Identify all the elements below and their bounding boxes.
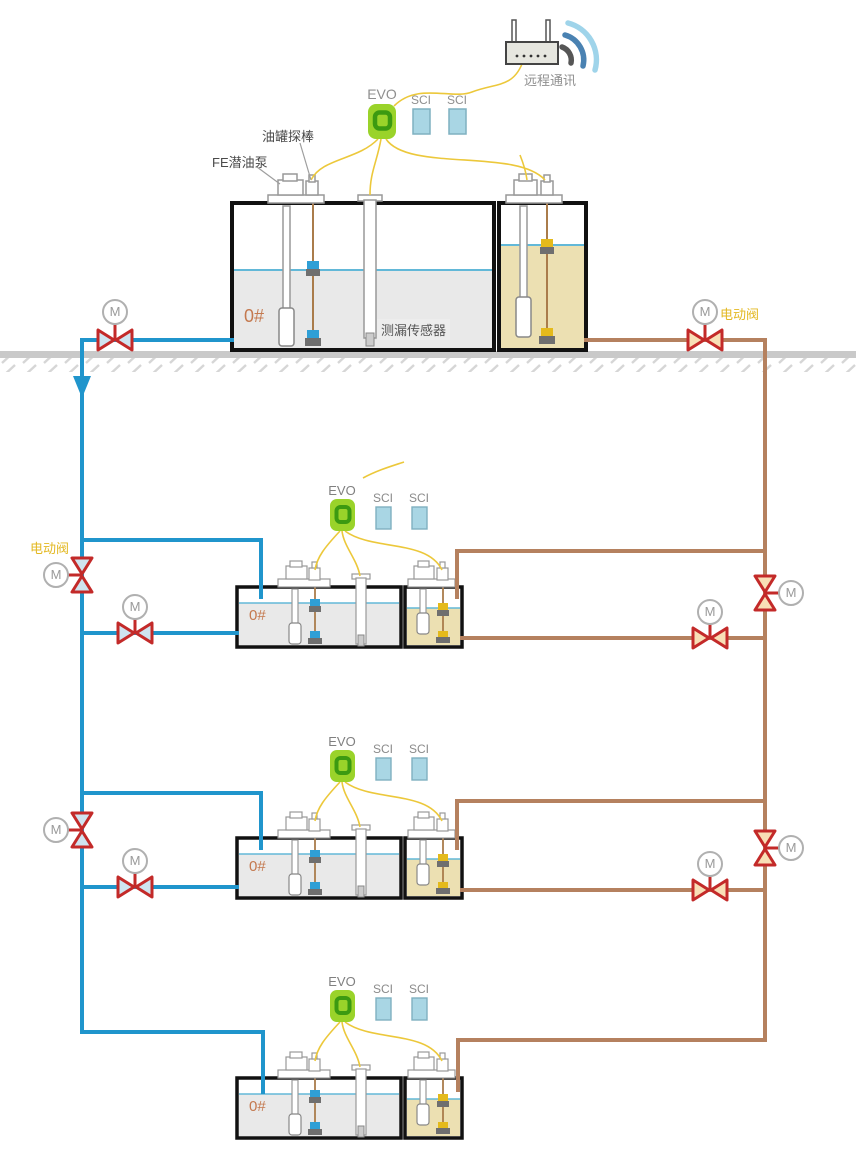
sci-module-icon (413, 109, 430, 134)
sci-label: SCI (437, 93, 477, 107)
tank-probe-label: 油罐探棒 (262, 126, 314, 145)
motor-actuator-badge: M (697, 599, 723, 625)
router-icon (506, 20, 558, 64)
submersible-pump-body (516, 297, 531, 337)
motor-actuator-badge: M (122, 848, 148, 874)
signal-wire-stub (363, 462, 404, 478)
ground-hatching (0, 358, 856, 372)
motor-actuator-badge: M (778, 835, 804, 861)
motor-actuator-badge: M (43, 562, 69, 588)
submersible-pump-label: FE潜油泵 (212, 152, 268, 171)
motor-actuator-badge: M (122, 594, 148, 620)
underground-station-1 (237, 483, 462, 647)
return-pipe-brown (457, 340, 765, 1092)
remote-comm-label: 远程通讯 (524, 70, 576, 89)
diagram-canvas: EVO SCI SCI 0# (0, 0, 856, 1154)
motor-actuator-badge: M (692, 299, 718, 325)
underground-station-2 (237, 734, 462, 898)
motor-actuator-badge: M (43, 817, 69, 843)
flow-arrow-down-icon (73, 376, 91, 398)
evo-console-icon (368, 104, 396, 139)
fuel-grade-label: 0# (244, 306, 264, 327)
supply-pipe-blue (82, 340, 263, 1094)
leak-sensor-label: 测漏传感器 (377, 319, 450, 340)
wifi-signal-icon (562, 23, 596, 70)
diesel-liquid (234, 270, 492, 348)
sci-module-icon (449, 109, 466, 134)
sci-label: SCI (401, 93, 441, 107)
underground-station-3 (237, 974, 462, 1138)
motor-actuator-badge: M (697, 851, 723, 877)
evo-label: EVO (357, 86, 407, 102)
electric-valve-label: 电动阀 (30, 538, 69, 557)
diagram-graphics: EVO SCI SCI 0# (0, 0, 856, 1154)
motor-actuator-badge: M (102, 299, 128, 325)
submersible-pump-body (279, 308, 294, 346)
electric-valve-label: 电动阀 (720, 304, 759, 323)
motor-actuator-badge: M (778, 580, 804, 606)
ground-line (0, 351, 856, 358)
